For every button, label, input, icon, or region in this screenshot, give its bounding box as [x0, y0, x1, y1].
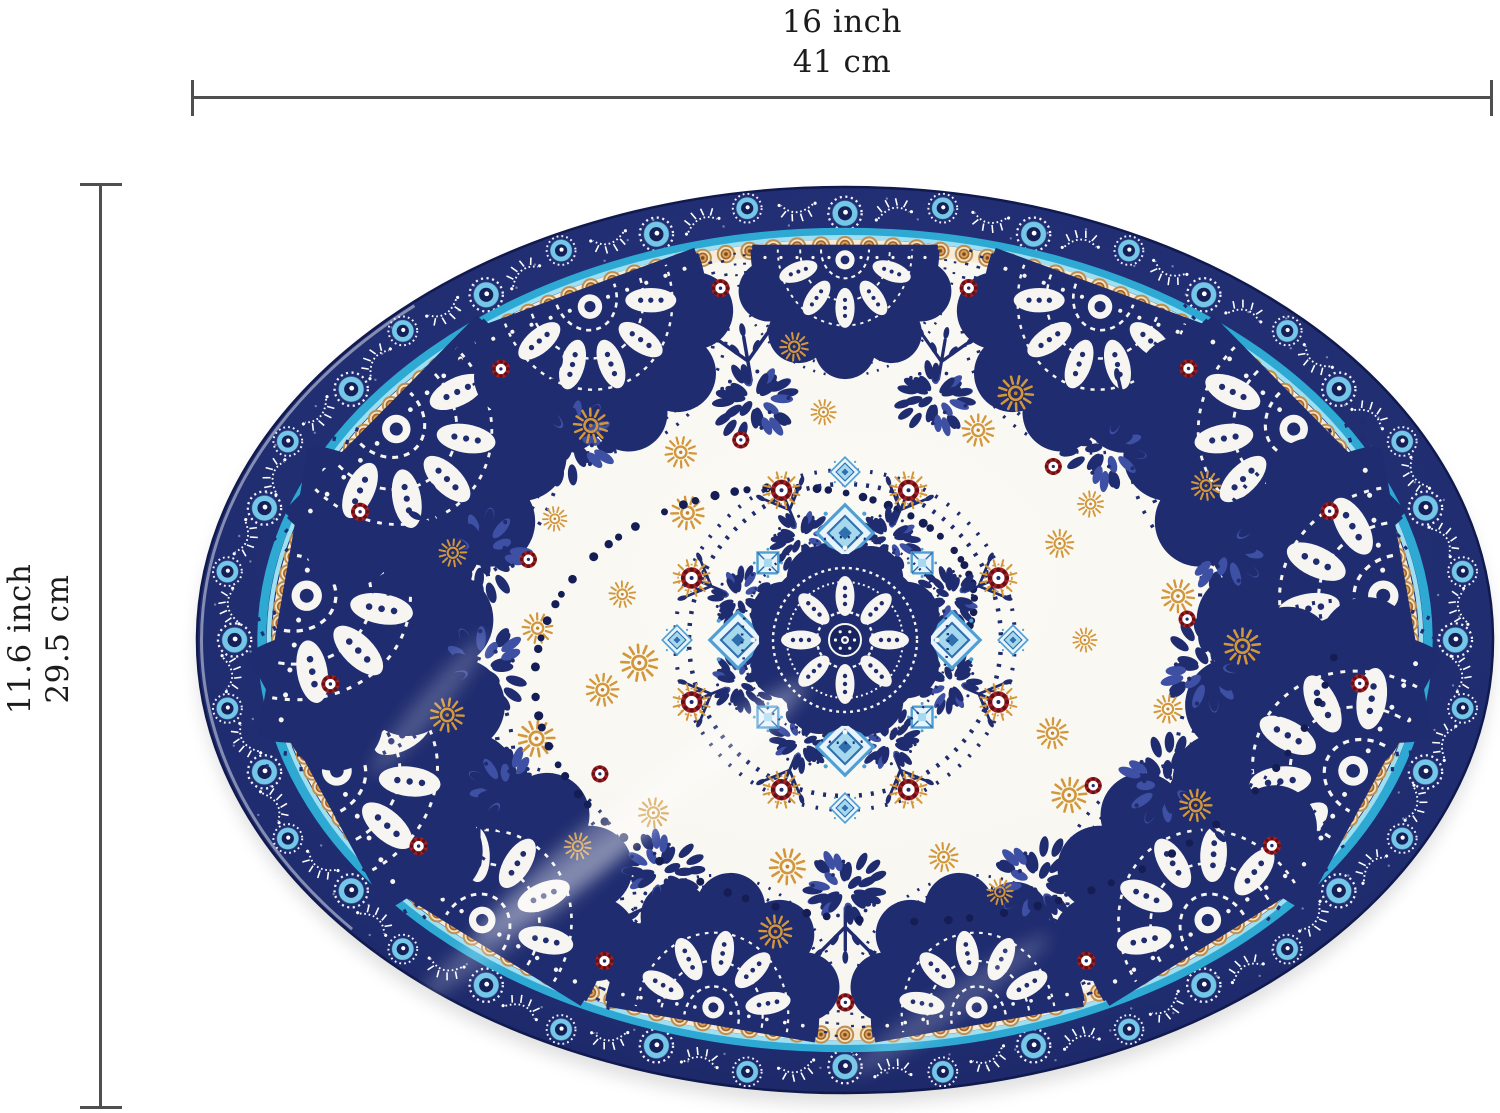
product-dimension-figure: 16 inch 41 cm 11.6 inch 29.5 cm [0, 0, 1500, 1113]
oval-platter-photo [0, 0, 1500, 1113]
